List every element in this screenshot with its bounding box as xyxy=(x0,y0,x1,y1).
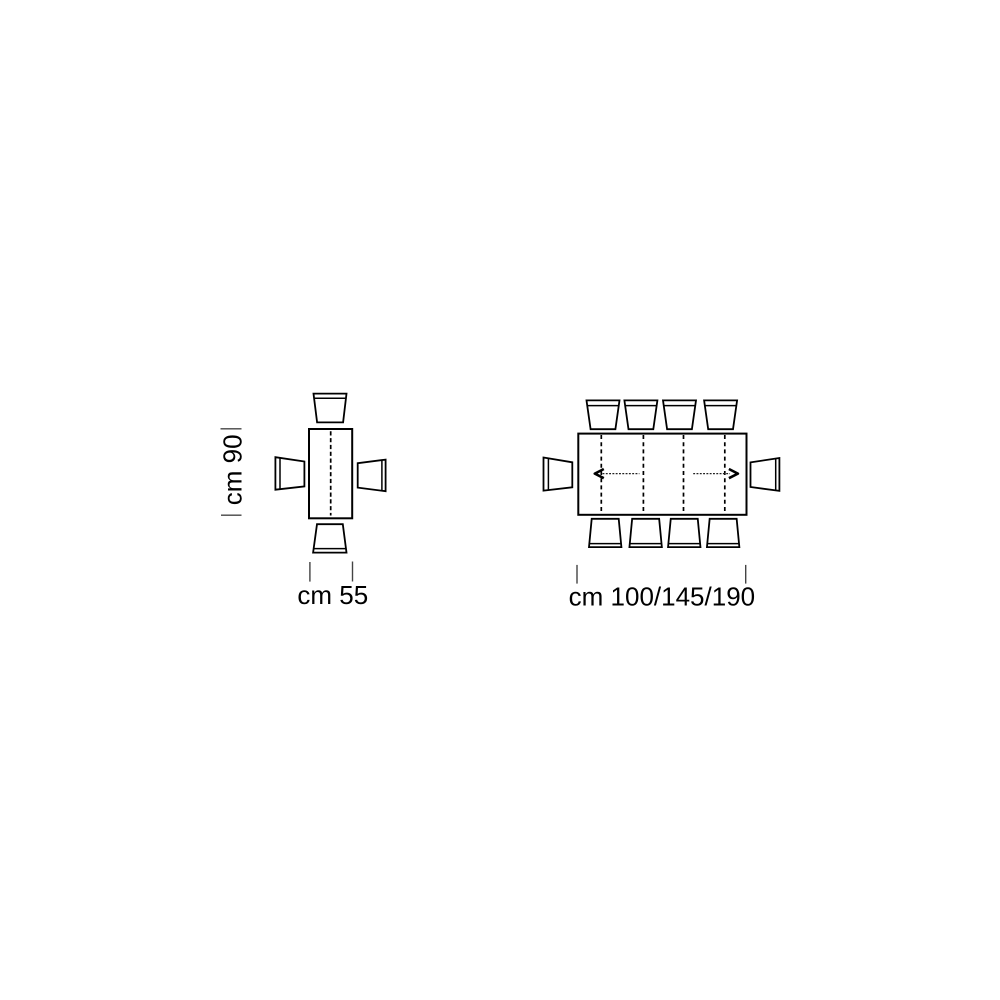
svg-text:cm 100/145/190: cm 100/145/190 xyxy=(569,582,755,612)
svg-text:cm 90: cm 90 xyxy=(218,434,248,505)
svg-text:cm 55: cm 55 xyxy=(297,580,368,610)
